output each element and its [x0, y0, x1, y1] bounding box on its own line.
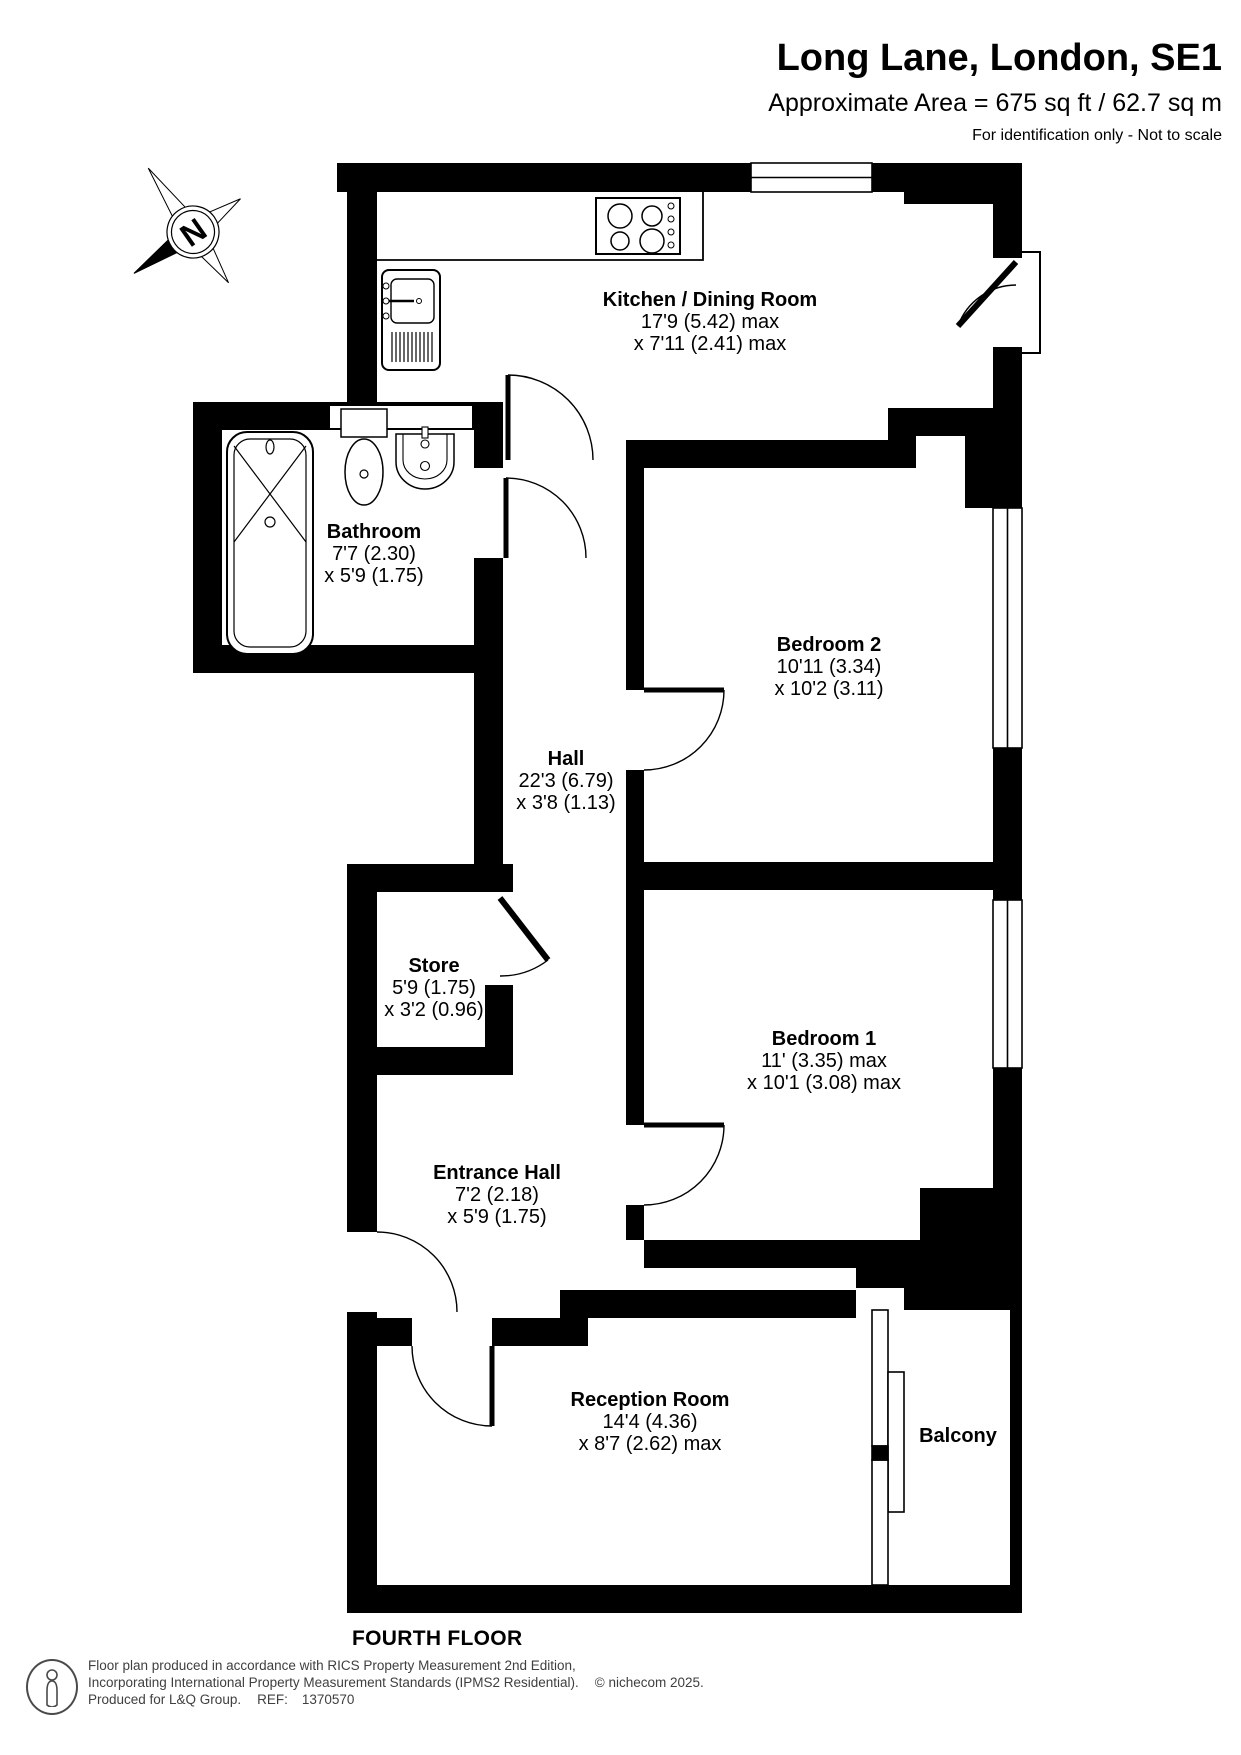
basin-icon — [396, 427, 454, 489]
room-dim: x 3'8 (1.13) — [516, 792, 615, 814]
window-bedroom1-icon — [993, 900, 1022, 1068]
footer-line-3: Produced for L&Q Group.REF:1370570 — [88, 1691, 988, 1708]
floorplan-drawing: N — [0, 0, 1241, 1755]
floor-label: FOURTH FLOOR — [352, 1627, 522, 1651]
room-dim: x 7'11 (2.41) max — [603, 333, 817, 355]
footer-line-2: Incorporating International Property Mea… — [88, 1674, 988, 1691]
floorplan-page: N Long Lane, London, SE1 Approximate Are… — [0, 0, 1241, 1755]
room-name: Hall — [516, 748, 615, 770]
room-dim: 7'7 (2.30) — [324, 543, 423, 565]
room-label-bedroom2: Bedroom 2 10'11 (3.34) x 10'2 (3.11) — [774, 634, 883, 700]
room-dim: x 10'1 (3.08) max — [747, 1072, 901, 1094]
room-name: Bedroom 2 — [774, 634, 883, 656]
door-kitchen-balcony-icon — [958, 252, 1040, 353]
door-bedroom2-icon — [644, 690, 724, 770]
room-dim: 7'2 (2.18) — [433, 1184, 561, 1206]
sink-icon — [382, 270, 440, 370]
sliding-door-balcony-icon — [872, 1310, 904, 1585]
footer-copyright: © nichecom 2025. — [595, 1675, 704, 1690]
header: Long Lane, London, SE1 Approximate Area … — [768, 38, 1222, 145]
footer-text: Floor plan produced in accordance with R… — [88, 1657, 988, 1708]
hob-icon — [596, 198, 680, 254]
toilet-icon — [341, 409, 387, 505]
room-dim: x 10'2 (3.11) — [774, 678, 883, 700]
room-dim: x 8'7 (2.62) max — [571, 1433, 730, 1455]
room-dim: 17'9 (5.42) max — [603, 311, 817, 333]
door-front-icon — [377, 1232, 457, 1312]
compass-north-icon: N — [89, 135, 276, 324]
footer-ref-label: REF: — [257, 1692, 288, 1707]
footer-standards: Incorporating International Property Mea… — [88, 1675, 579, 1690]
room-dim: x 5'9 (1.75) — [433, 1206, 561, 1228]
footer-produced-for: Produced for L&Q Group. — [88, 1692, 241, 1707]
room-name: Balcony — [919, 1425, 997, 1447]
door-bedroom1-icon — [644, 1125, 724, 1205]
window-bedroom2-icon — [993, 508, 1022, 748]
room-dim: 10'11 (3.34) — [774, 656, 883, 678]
page-title: Long Lane, London, SE1 — [768, 38, 1222, 78]
room-label-reception: Reception Room 14'4 (4.36) x 8'7 (2.62) … — [571, 1389, 730, 1455]
room-label-kitchen: Kitchen / Dining Room 17'9 (5.42) max x … — [603, 289, 817, 355]
room-dim: 14'4 (4.36) — [571, 1411, 730, 1433]
door-bathroom-icon — [506, 478, 586, 558]
room-name: Bathroom — [324, 521, 423, 543]
room-dim: 22'3 (6.79) — [516, 770, 615, 792]
room-label-bathroom: Bathroom 7'7 (2.30) x 5'9 (1.75) — [324, 521, 423, 587]
room-label-store: Store 5'9 (1.75) x 3'2 (0.96) — [384, 955, 483, 1021]
footer-ref-value: 1370570 — [302, 1692, 355, 1707]
room-name: Entrance Hall — [433, 1162, 561, 1184]
room-name: Reception Room — [571, 1389, 730, 1411]
room-dim: 11' (3.35) max — [747, 1050, 901, 1072]
room-dim: 5'9 (1.75) — [384, 977, 483, 999]
room-name: Kitchen / Dining Room — [603, 289, 817, 311]
door-kitchen-icon — [508, 375, 593, 460]
door-store-icon — [500, 898, 548, 976]
room-name: Store — [384, 955, 483, 977]
room-label-hall: Hall 22'3 (6.79) x 3'8 (1.13) — [516, 748, 615, 814]
room-label-entrance-hall: Entrance Hall 7'2 (2.18) x 5'9 (1.75) — [433, 1162, 561, 1228]
room-dim: x 3'2 (0.96) — [384, 999, 483, 1021]
bath-icon — [227, 432, 313, 654]
area-line: Approximate Area = 675 sq ft / 62.7 sq m — [768, 89, 1222, 118]
disclaimer-line: For identification only - Not to scale — [768, 127, 1222, 145]
footer-line-1: Floor plan produced in accordance with R… — [88, 1657, 988, 1674]
room-label-balcony: Balcony — [919, 1425, 997, 1447]
person-icon — [26, 1659, 78, 1715]
room-dim: x 5'9 (1.75) — [324, 565, 423, 587]
door-reception-icon — [412, 1346, 492, 1426]
window-kitchen-top-icon — [751, 163, 872, 192]
room-name: Bedroom 1 — [747, 1028, 901, 1050]
room-label-bedroom1: Bedroom 1 11' (3.35) max x 10'1 (3.08) m… — [747, 1028, 901, 1094]
